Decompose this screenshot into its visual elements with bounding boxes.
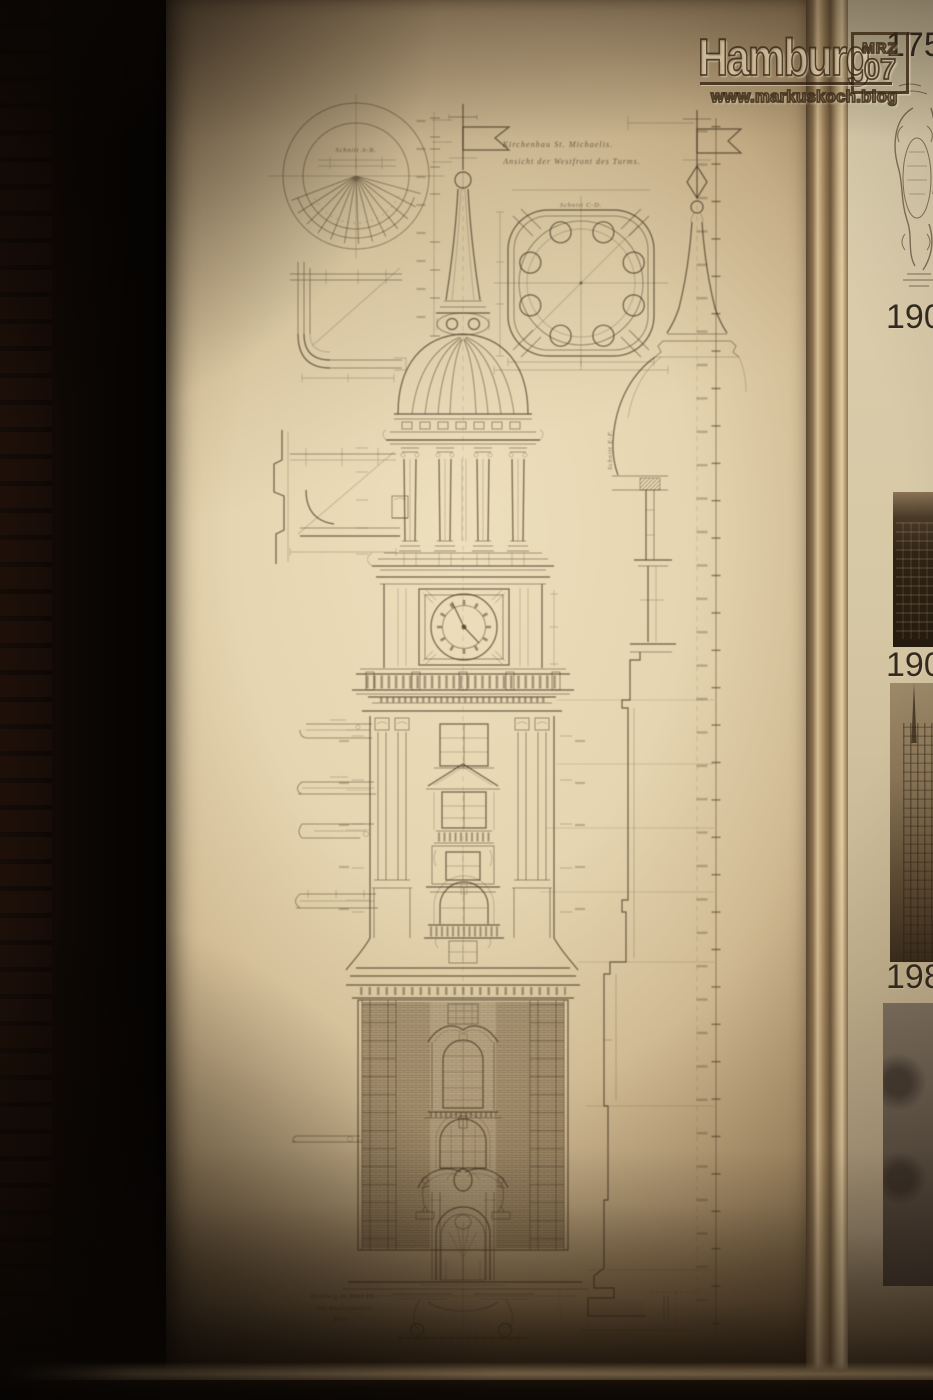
corner-plan-detail-1 [290, 262, 406, 382]
clock-stage [376, 570, 558, 668]
dimension-chain-left [421, 112, 440, 336]
knop-opening-left [447, 319, 458, 330]
label-section-cd: Schnitt C-D. [560, 202, 602, 209]
exhibit-photo: 175 190 190 198 [0, 0, 933, 1400]
inscription-line1: Hamburg im März 19.. [310, 1293, 378, 1300]
clock-balustrade [352, 669, 574, 694]
corner-plan-detail-2 [274, 430, 408, 564]
dome-section-curve [613, 357, 655, 475]
plan-section-cd: Schnitt C-D. [494, 190, 668, 374]
bottom-details: Hamburg im März 19.. Die Baudeputation B… [310, 1288, 700, 1346]
knop-opening-right [469, 319, 480, 330]
drawing-title-line2: Ansicht der Westfront des Turms. [502, 157, 640, 166]
label-section-ef: Schnitt E-F. [607, 430, 614, 470]
floor [0, 1380, 933, 1400]
tower-brick-base [342, 968, 588, 1296]
label-section-ab: Schnitt A-B. [336, 147, 377, 154]
tower-upper-shaft [344, 697, 580, 970]
section-wall-profile [604, 652, 640, 1268]
foundation-anchor-detail [392, 1288, 534, 1345]
section-pennant [697, 129, 741, 153]
foundation-profile-detail [560, 1290, 700, 1340]
drawing-title-line1: Kirchenbau St. Michaelis. [502, 140, 614, 149]
spire-section-profile: Schnitt E-F. [540, 110, 746, 1340]
sheet-titles: Kirchenbau St. Michaelis. Ansicht der We… [502, 140, 641, 166]
inscription-line3: Blatt .. [334, 1316, 355, 1323]
inscription-line2: Die Baudeputation [315, 1305, 371, 1312]
clock-hour-hand [464, 627, 479, 643]
architectural-drawing: Kirchenbau St. Michaelis. Ansicht der We… [0, 0, 933, 1400]
